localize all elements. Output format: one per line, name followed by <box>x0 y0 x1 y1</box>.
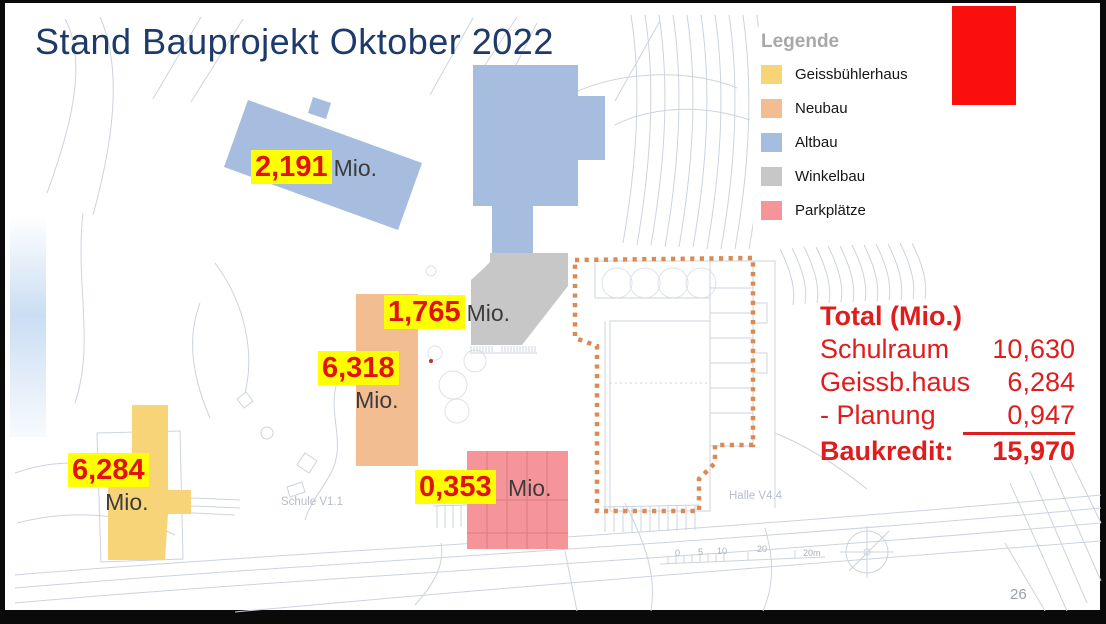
totals-total-label: Baukredit: <box>820 435 954 468</box>
legend-item-neubau: Neubau <box>761 98 929 118</box>
slide-canvas: Stand Bauprojekt Oktober 2022 Legende Ge… <box>5 3 1100 610</box>
legend-swatch-winkelbau <box>761 167 782 186</box>
slide-title: Stand Bauprojekt Oktober 2022 <box>35 21 554 63</box>
page-number: 26 <box>1010 586 1027 603</box>
scale-tick-20: 20 <box>757 544 767 554</box>
legend-label: Winkelbau <box>795 168 869 185</box>
cost-value: 2,191 <box>251 150 332 184</box>
cost-label-geissbuehlerhaus: 6,284 Mio. <box>68 454 149 516</box>
building-altbau-west-tab <box>308 97 331 119</box>
cost-label-parkplaetze: 0,353 Mio. <box>415 471 551 504</box>
legend-label: Geissbühlerhaus <box>795 66 912 83</box>
legend-heading: Legende <box>761 31 929 53</box>
totals-row-planung: - Planung 0,947 <box>820 399 1075 435</box>
totals-row-label: Geissb.haus <box>820 366 970 399</box>
scale-tick-5: 5 <box>698 547 703 557</box>
totals-row-label: - Planung <box>820 399 936 435</box>
winkelbau-hatching <box>470 346 537 353</box>
red-survey-dot <box>429 359 433 363</box>
totals-row-schulraum: Schulraum 10,630 <box>820 333 1075 366</box>
cost-value: 0,353 <box>415 470 496 504</box>
totals-row-value: 6,284 <box>970 366 1075 399</box>
cost-value: 1,765 <box>384 295 465 329</box>
planned-hall-dashed-outline <box>575 258 753 511</box>
legend-label: Neubau <box>795 100 852 117</box>
red-accent-rectangle <box>952 6 1016 105</box>
totals-row-baukredit: Baukredit: 15,970 <box>820 435 1075 468</box>
cost-unit: Mio. <box>320 387 399 414</box>
cost-unit: Mio. <box>70 489 149 516</box>
cost-label-winkelbau: 1,765Mio. <box>384 296 510 329</box>
totals-row-value: 10,630 <box>963 333 1075 366</box>
plan-label-halle: Halle V4.4 <box>729 490 782 502</box>
totals-row-label: Schulraum <box>820 333 949 366</box>
totals-row-value-underlined: 0,947 <box>963 399 1075 435</box>
cost-value: 6,318 <box>318 351 399 385</box>
legend-swatch-neubau <box>761 99 782 118</box>
cost-value: 6,284 <box>68 453 149 487</box>
compass-icon <box>840 526 894 578</box>
scale-bar <box>660 550 825 564</box>
legend-label: Parkplätze <box>795 202 870 219</box>
building-altbau-main <box>473 65 605 255</box>
plan-label-schule: Schule V1.1 <box>281 496 343 508</box>
totals-row-geissbhaus: Geissb.haus 6,284 <box>820 366 1075 399</box>
legend: Legende Geissbühlerhaus Neubau Altbau Wi… <box>753 27 935 228</box>
left-gradient-decoration <box>10 215 46 437</box>
legend-label: Altbau <box>795 134 842 151</box>
legend-swatch-parkplaetze <box>761 201 782 220</box>
cost-label-altbau: 2,191Mio. <box>251 151 377 184</box>
totals-block: Total (Mio.) Schulraum 10,630 Geissb.hau… <box>820 300 1075 468</box>
scale-tick-0: 0 <box>675 548 680 558</box>
cost-unit: Mio. <box>467 300 510 326</box>
cost-unit: Mio. <box>508 475 551 501</box>
screenshot-frame: Stand Bauprojekt Oktober 2022 Legende Ge… <box>0 0 1106 624</box>
scale-unit-label: 20m <box>803 548 821 558</box>
legend-swatch-geissbuehlerhaus <box>761 65 782 84</box>
scale-tick-10: 10 <box>717 546 727 556</box>
totals-heading: Total (Mio.) <box>820 300 1075 333</box>
legend-item-parkplaetze: Parkplätze <box>761 200 929 220</box>
legend-item-altbau: Altbau <box>761 132 929 152</box>
legend-item-winkelbau: Winkelbau <box>761 166 929 186</box>
cost-label-neubau: 6,318 Mio. <box>318 352 399 414</box>
cost-unit: Mio. <box>334 155 377 181</box>
legend-swatch-altbau <box>761 133 782 152</box>
tree-outlines <box>426 266 716 423</box>
totals-total-value: 15,970 <box>963 435 1075 468</box>
legend-item-geissbuehlerhaus: Geissbühlerhaus <box>761 64 929 84</box>
